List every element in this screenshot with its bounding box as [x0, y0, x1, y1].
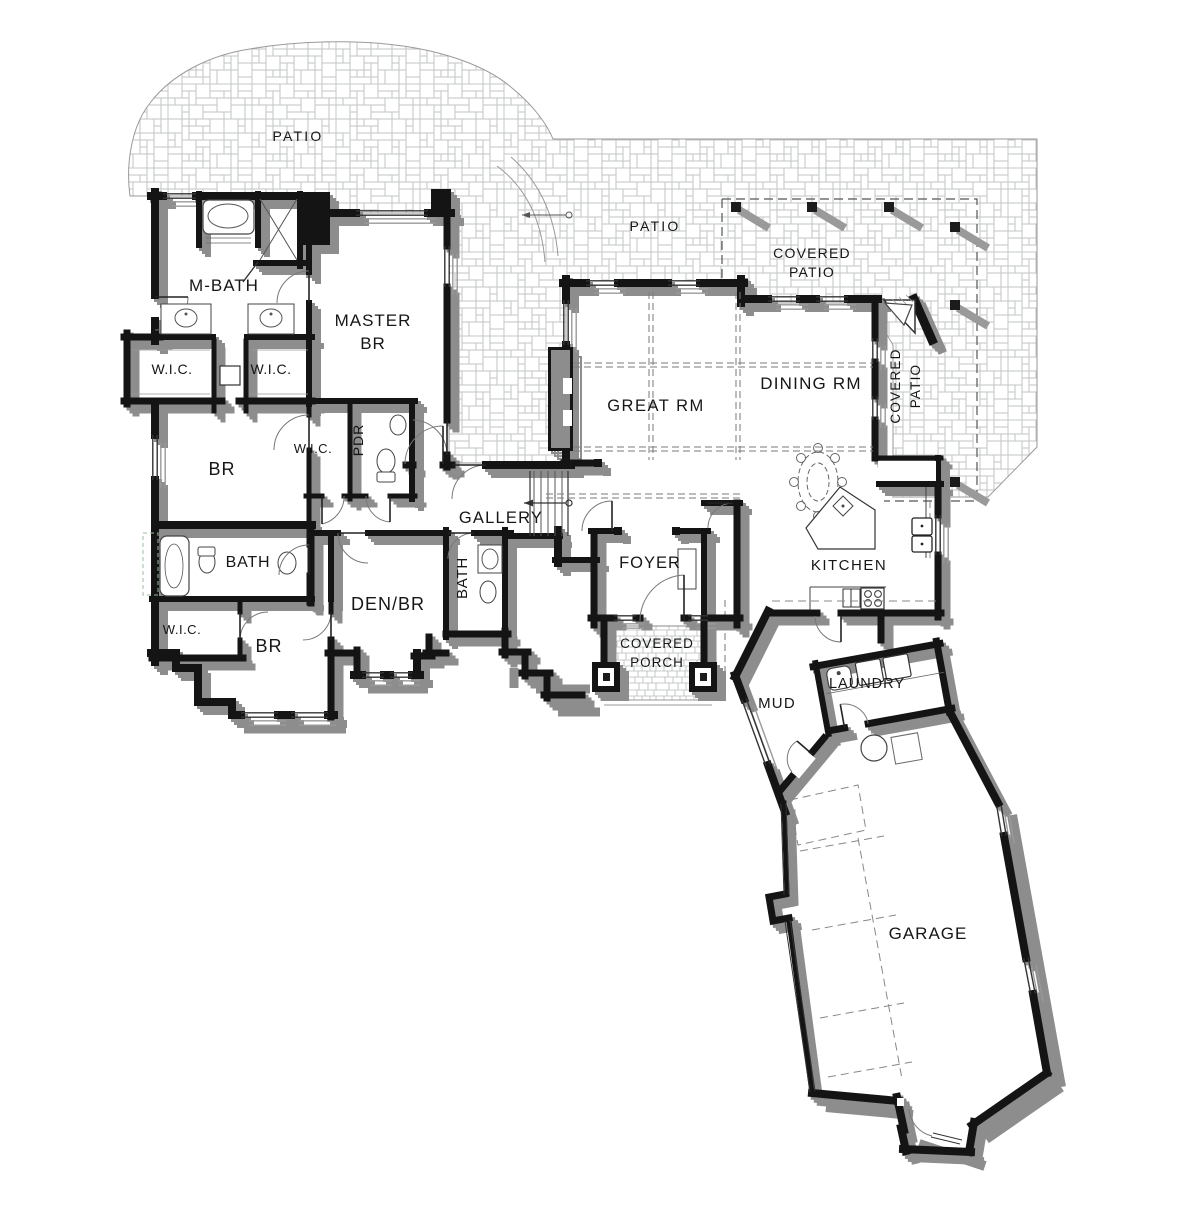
- svg-text:DEN/BR: DEN/BR: [351, 594, 425, 614]
- svg-text:GALLERY: GALLERY: [459, 509, 543, 527]
- svg-text:DINING RM: DINING RM: [760, 374, 861, 393]
- svg-text:GARAGE: GARAGE: [889, 924, 968, 943]
- svg-text:LAUNDRY: LAUNDRY: [829, 676, 905, 692]
- svg-text:PATIO: PATIO: [273, 128, 324, 144]
- svg-text:W.I.C.: W.I.C.: [250, 361, 291, 377]
- svg-text:BR: BR: [208, 459, 235, 479]
- svg-text:FOYER: FOYER: [619, 554, 681, 572]
- svg-text:MUD: MUD: [758, 695, 796, 712]
- svg-text:BR: BR: [255, 636, 282, 656]
- svg-text:PATIO: PATIO: [630, 218, 681, 234]
- svg-text:PDR: PDR: [350, 424, 366, 457]
- svg-text:COVERED: COVERED: [888, 348, 903, 423]
- svg-text:W.I.C.: W.I.C.: [151, 361, 192, 377]
- svg-text:M-BATH: M-BATH: [189, 276, 259, 295]
- svg-text:BR: BR: [360, 334, 386, 353]
- svg-text:GREAT RM: GREAT RM: [607, 397, 705, 415]
- svg-text:BATH: BATH: [454, 557, 471, 599]
- svg-text:W.I.C.: W.I.C.: [294, 441, 332, 456]
- svg-text:PORCH: PORCH: [630, 655, 684, 670]
- svg-text:PATIO: PATIO: [908, 364, 923, 409]
- svg-text:COVERED: COVERED: [773, 245, 851, 261]
- svg-text:BATH: BATH: [226, 554, 271, 571]
- svg-text:PATIO: PATIO: [789, 264, 835, 280]
- svg-text:W.I.C.: W.I.C.: [163, 622, 201, 637]
- svg-text:KITCHEN: KITCHEN: [811, 557, 887, 574]
- svg-text:COVERED: COVERED: [620, 636, 694, 651]
- svg-text:MASTER: MASTER: [335, 311, 412, 330]
